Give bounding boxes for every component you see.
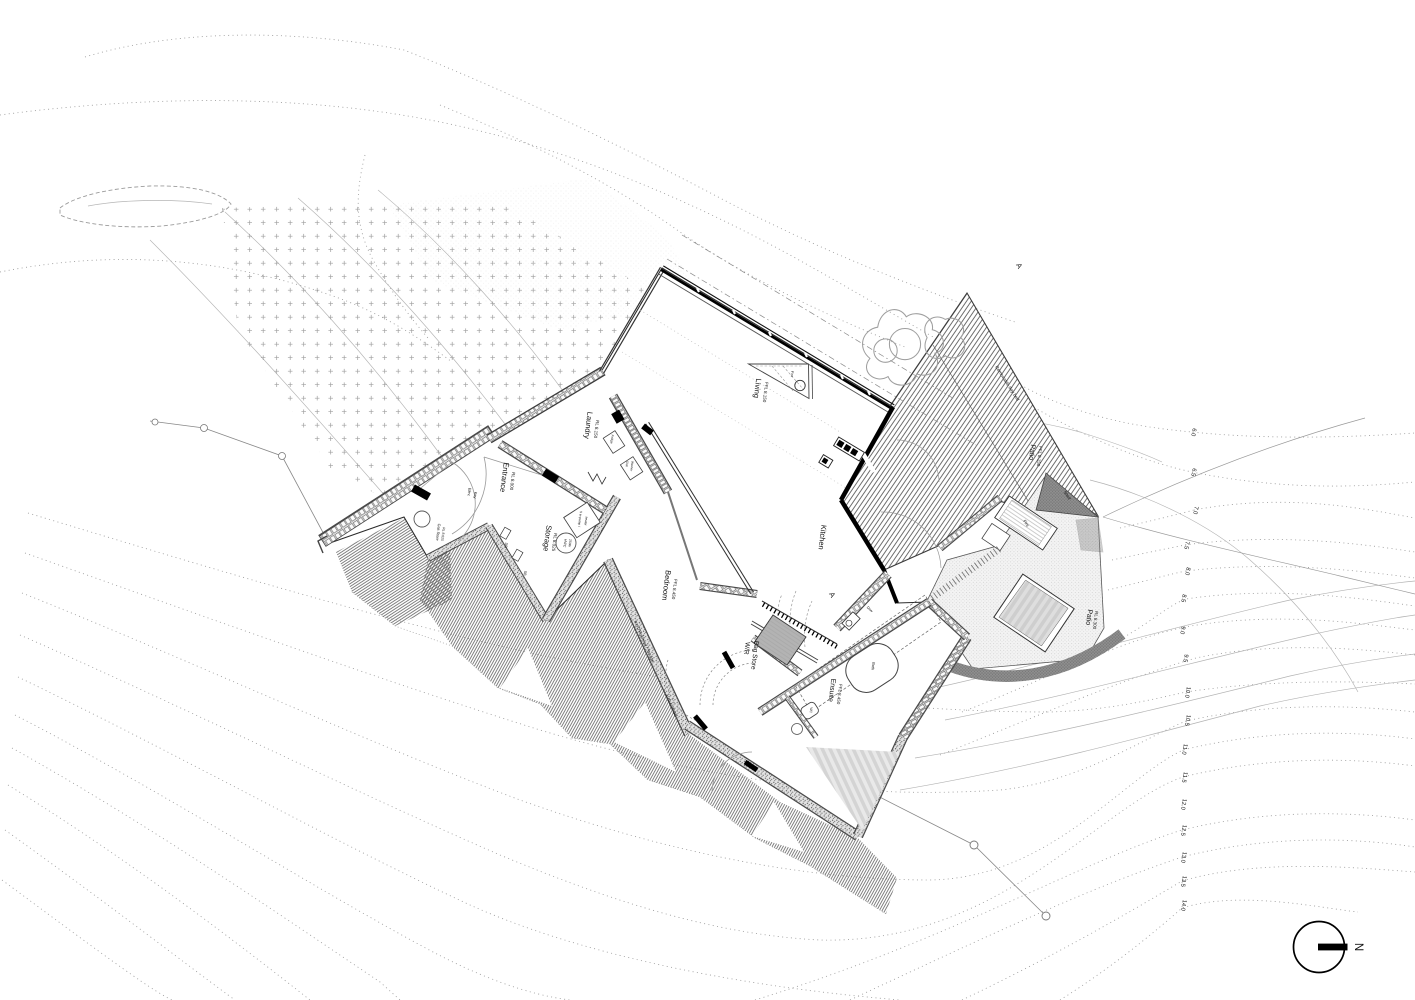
svg-text:Fire: Fire [790, 371, 794, 377]
svg-text:Elev.: Elev. [466, 488, 472, 497]
svg-text:WC: WC [809, 707, 814, 714]
svg-text:Dish: Dish [625, 461, 630, 468]
svg-text:N: N [1352, 943, 1364, 951]
svg-text:Key: Key [473, 491, 479, 498]
